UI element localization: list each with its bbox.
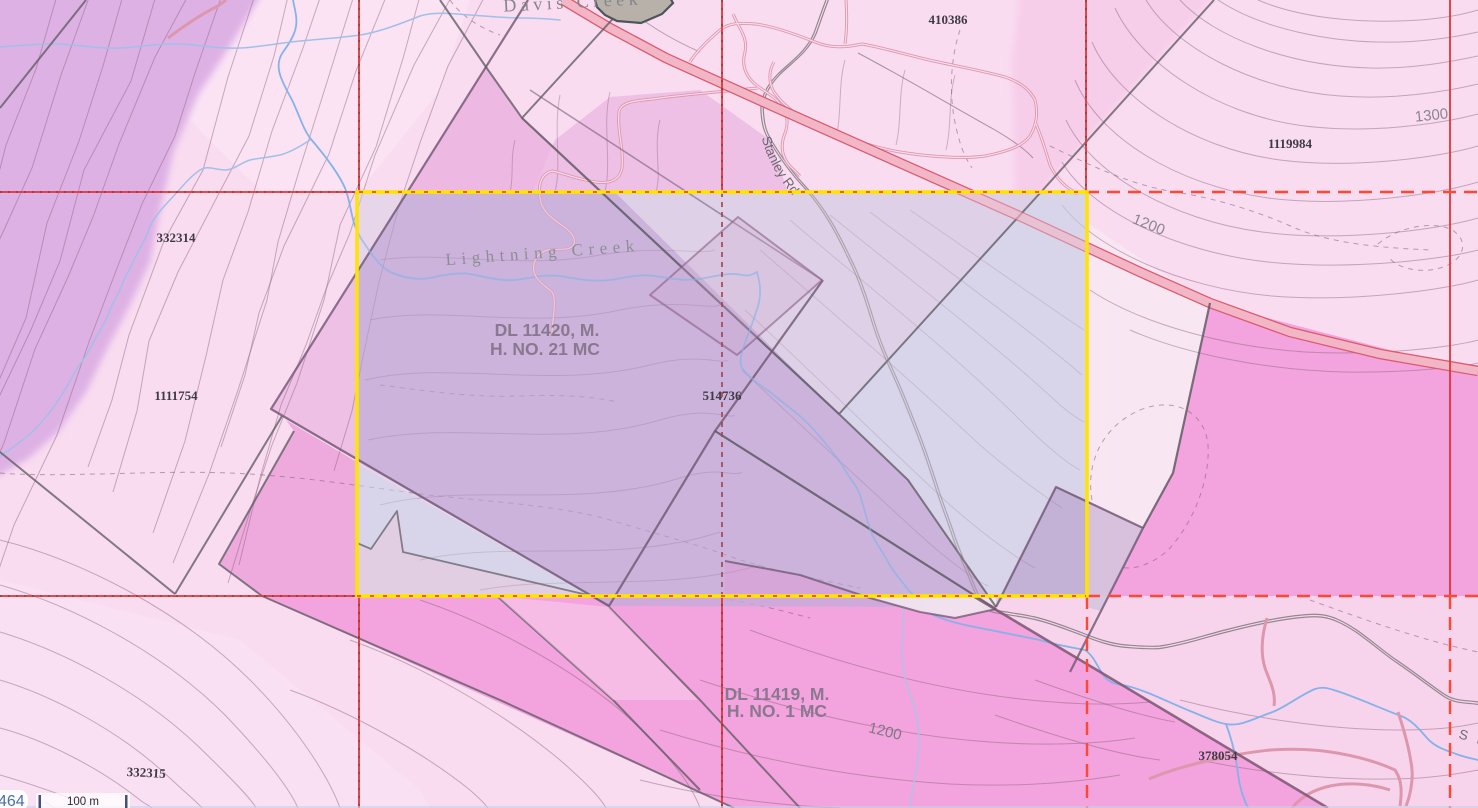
svg-text:410386: 410386 xyxy=(929,12,969,27)
svg-text:1119984: 1119984 xyxy=(1268,136,1313,151)
svg-text:332314: 332314 xyxy=(157,230,197,245)
svg-text:1300: 1300 xyxy=(1414,105,1449,125)
svg-text:1111754: 1111754 xyxy=(154,388,198,403)
svg-text:378054: 378054 xyxy=(1199,748,1239,763)
svg-text:100 m: 100 m xyxy=(67,796,99,808)
svg-text:DL 11420, M.: DL 11420, M. xyxy=(495,320,600,340)
svg-text:H. NO. 1 MC: H. NO. 1 MC xyxy=(727,701,828,721)
svg-text:332315: 332315 xyxy=(126,764,166,781)
svg-text:H. NO. 21 MC: H. NO. 21 MC xyxy=(490,339,600,359)
svg-text:464: 464 xyxy=(0,793,25,808)
